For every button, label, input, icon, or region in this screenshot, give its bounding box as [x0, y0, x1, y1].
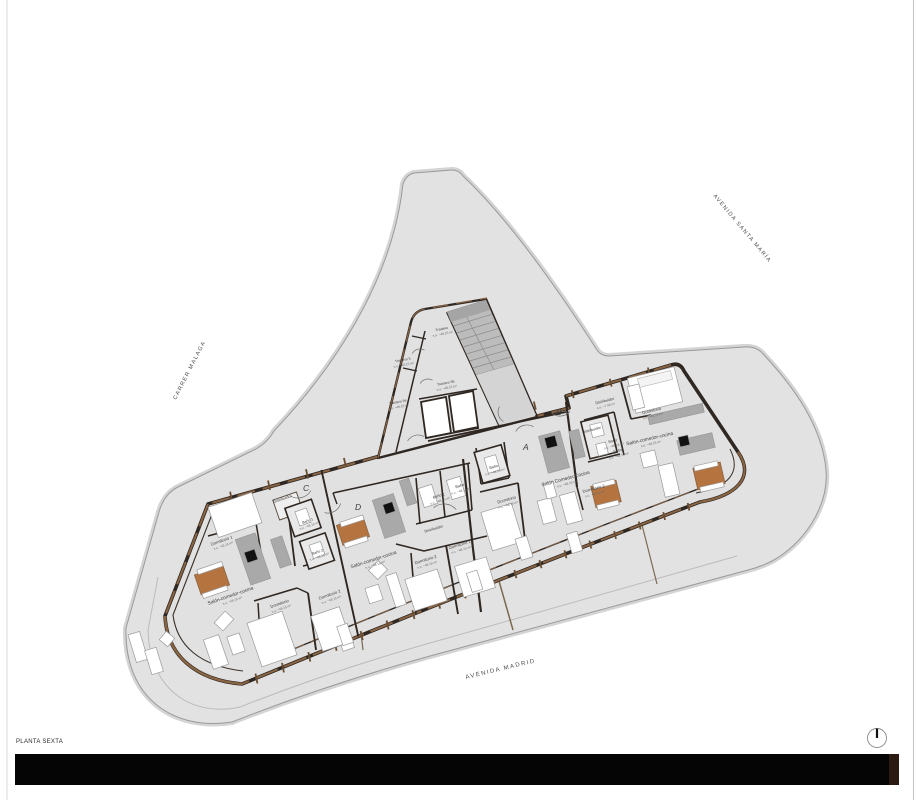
svg-text:A: A — [522, 442, 529, 452]
svg-text:PLANTA SEXTA: PLANTA SEXTA — [16, 739, 63, 745]
svg-text:C: C — [303, 483, 310, 493]
svg-text:B: B — [556, 407, 562, 417]
svg-text:D: D — [355, 502, 361, 512]
